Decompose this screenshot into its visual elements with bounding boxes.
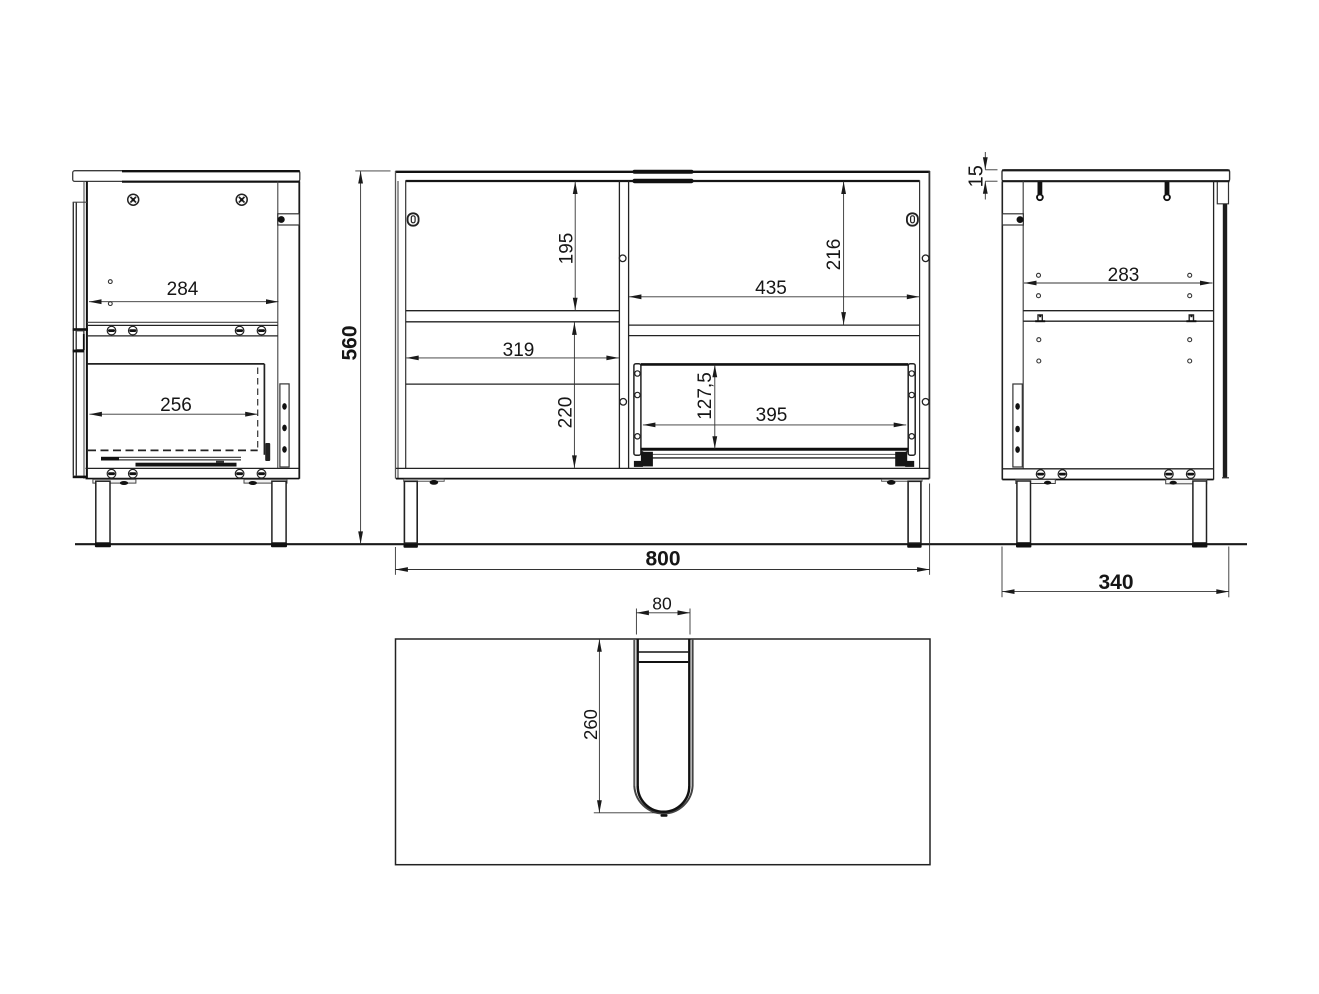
svg-text:319: 319 (503, 340, 535, 361)
svg-text:127,5: 127,5 (695, 372, 716, 420)
svg-text:800: 800 (645, 548, 680, 571)
svg-text:260: 260 (580, 709, 601, 740)
svg-text:435: 435 (755, 278, 787, 299)
svg-text:284: 284 (167, 279, 199, 300)
svg-text:560: 560 (338, 325, 361, 360)
svg-text:195: 195 (557, 233, 578, 265)
svg-text:15: 15 (966, 165, 988, 187)
svg-text:256: 256 (160, 395, 192, 416)
svg-text:395: 395 (756, 405, 788, 426)
svg-text:340: 340 (1098, 571, 1133, 594)
svg-text:80: 80 (652, 593, 672, 613)
svg-text:220: 220 (556, 397, 577, 429)
svg-text:283: 283 (1108, 265, 1140, 286)
svg-text:216: 216 (824, 239, 845, 271)
